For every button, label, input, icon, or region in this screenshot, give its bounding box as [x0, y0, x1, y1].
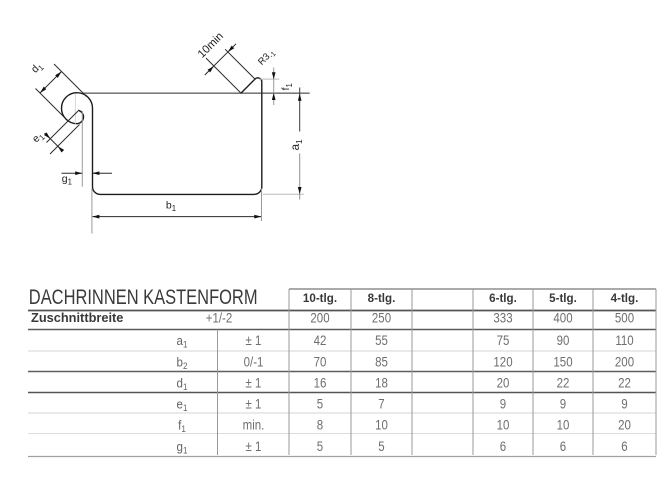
- svg-text:500: 500: [615, 310, 634, 326]
- svg-text:± 1: ± 1: [246, 438, 262, 454]
- svg-text:18: 18: [375, 374, 388, 390]
- svg-text:6: 6: [560, 438, 566, 454]
- svg-text:5: 5: [378, 438, 384, 454]
- svg-text:22: 22: [557, 374, 570, 390]
- svg-text:± 1: ± 1: [246, 374, 262, 390]
- svg-text:250: 250: [372, 310, 391, 326]
- svg-text:6-tlg.: 6-tlg.: [489, 292, 517, 305]
- svg-text:42: 42: [314, 332, 327, 348]
- svg-text:10: 10: [557, 416, 570, 432]
- svg-text:6: 6: [621, 438, 627, 454]
- svg-text:DACHRINNEN KASTENFORM: DACHRINNEN KASTENFORM: [29, 285, 258, 308]
- svg-text:+1/-2: +1/-2: [206, 310, 233, 326]
- svg-text:9: 9: [500, 395, 506, 411]
- svg-text:20: 20: [618, 416, 631, 432]
- svg-text:110: 110: [615, 332, 633, 348]
- svg-text:6: 6: [500, 438, 506, 454]
- svg-text:400: 400: [553, 310, 572, 326]
- svg-text:5-tlg.: 5-tlg.: [549, 292, 577, 305]
- svg-text:20: 20: [497, 374, 510, 390]
- svg-text:16: 16: [314, 374, 327, 390]
- svg-text:333: 333: [493, 310, 512, 326]
- svg-text:4-tlg.: 4-tlg.: [611, 292, 639, 305]
- svg-text:min.: min.: [243, 416, 265, 432]
- svg-text:± 1: ± 1: [246, 332, 262, 348]
- svg-text:120: 120: [493, 353, 512, 369]
- svg-text:9: 9: [560, 395, 566, 411]
- svg-text:5: 5: [317, 395, 323, 411]
- svg-text:± 1: ± 1: [246, 395, 262, 411]
- svg-text:55: 55: [375, 332, 388, 348]
- svg-text:10: 10: [375, 416, 388, 432]
- svg-text:10-tlg.: 10-tlg.: [303, 292, 337, 305]
- svg-text:200: 200: [310, 310, 329, 326]
- svg-text:90: 90: [557, 332, 570, 348]
- svg-text:75: 75: [497, 332, 510, 348]
- svg-text:8-tlg.: 8-tlg.: [368, 292, 396, 305]
- svg-text:200: 200: [615, 353, 634, 369]
- svg-text:10: 10: [497, 416, 510, 432]
- svg-text:150: 150: [553, 353, 572, 369]
- svg-text:85: 85: [375, 353, 388, 369]
- svg-text:Zuschnittbreite: Zuschnittbreite: [31, 310, 123, 325]
- svg-text:70: 70: [314, 353, 327, 369]
- svg-text:5: 5: [317, 438, 323, 454]
- svg-text:0/-1: 0/-1: [244, 353, 264, 369]
- svg-text:7: 7: [378, 395, 384, 411]
- svg-text:22: 22: [618, 374, 631, 390]
- svg-text:9: 9: [621, 395, 627, 411]
- svg-text:8: 8: [317, 416, 323, 432]
